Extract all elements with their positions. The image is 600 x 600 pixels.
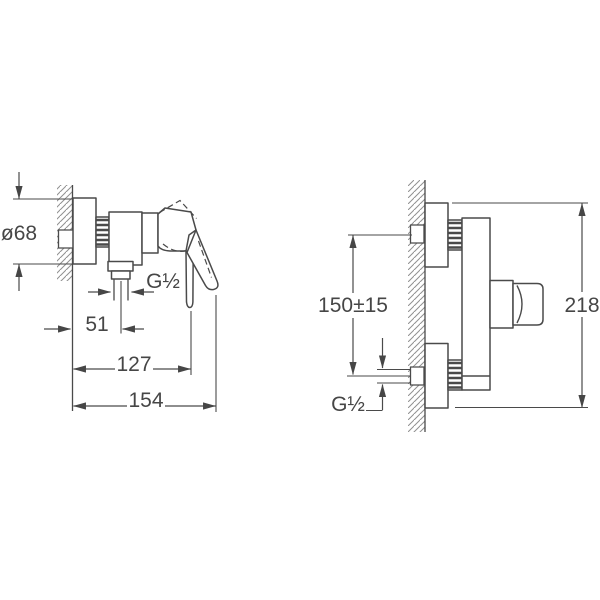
dim-supply-spacing: 150±15 bbox=[318, 235, 412, 376]
dim-label-154: 154 bbox=[128, 389, 163, 412]
threaded-nipple-top bbox=[448, 220, 462, 250]
supply-connection-top bbox=[411, 225, 425, 243]
technical-drawing: ø68 G½ 51 127 154 bbox=[0, 0, 600, 600]
side-view: ø68 G½ 51 127 154 bbox=[1, 172, 218, 412]
dim-label-diameter: ø68 bbox=[1, 222, 37, 245]
dim-supply-thread: G½ bbox=[331, 338, 410, 416]
front-view: 150±15 G½ 218 bbox=[318, 180, 599, 432]
threaded-nipple-bottom bbox=[448, 360, 462, 390]
dim-wall-to-outlet: 51 bbox=[44, 313, 144, 336]
dim-label-218: 218 bbox=[564, 294, 599, 317]
dim-label-127: 127 bbox=[116, 353, 151, 376]
mixer-body bbox=[109, 212, 142, 265]
lever-handle bbox=[490, 281, 543, 329]
escutcheon-bottom bbox=[425, 344, 448, 409]
dim-outlet-thread: G½ bbox=[88, 270, 180, 293]
cartridge-housing bbox=[142, 213, 158, 253]
dim-label-supply-thread: G½ bbox=[331, 393, 365, 416]
escutcheon bbox=[73, 198, 96, 264]
handle-knob bbox=[513, 284, 543, 326]
outlet-pipe bbox=[108, 262, 133, 334]
supply-connection-bottom bbox=[411, 367, 425, 385]
mixer-body bbox=[462, 218, 490, 390]
wall-hatch bbox=[408, 180, 425, 432]
threaded-nipple bbox=[96, 217, 109, 247]
escutcheon-top bbox=[425, 203, 448, 267]
dim-label-51: 51 bbox=[85, 313, 108, 336]
dim-label-150: 150±15 bbox=[318, 294, 388, 317]
handle-stem bbox=[490, 281, 513, 329]
dim-label-outlet-thread: G½ bbox=[146, 270, 180, 293]
